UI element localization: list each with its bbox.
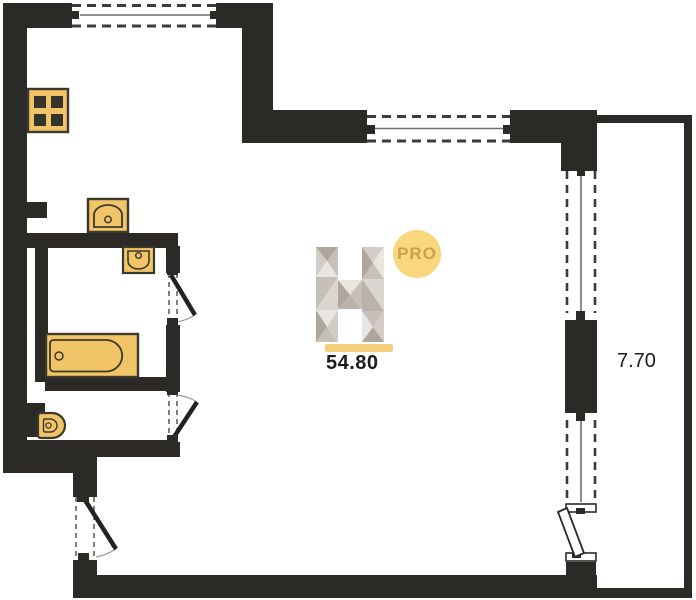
floor-plan-page: PRO 54.80 7.70 <box>0 0 696 600</box>
total-area-label: 54.80 <box>326 352 396 375</box>
entry-door <box>76 494 116 561</box>
toilet-icon <box>38 413 65 438</box>
bathtub-icon <box>46 334 138 377</box>
bathroom-door <box>167 266 195 326</box>
area-underline <box>325 344 393 352</box>
balcony-door <box>558 504 596 561</box>
logo <box>316 247 384 342</box>
kitchen-sink-icon <box>88 199 128 232</box>
washbasin-icon <box>123 247 154 273</box>
stove-icon <box>28 89 68 132</box>
logo-pro-text: PRO <box>397 244 437 264</box>
balcony-window-upper <box>567 167 595 320</box>
balcony-area-label: 7.70 <box>617 350 677 373</box>
logo-pro-badge: PRO <box>393 230 441 278</box>
kitchen-window <box>72 6 217 27</box>
balcony-window-lower <box>567 413 595 504</box>
logo-letter-h <box>316 247 384 342</box>
toilet-door <box>167 387 197 443</box>
main-window <box>367 117 511 142</box>
